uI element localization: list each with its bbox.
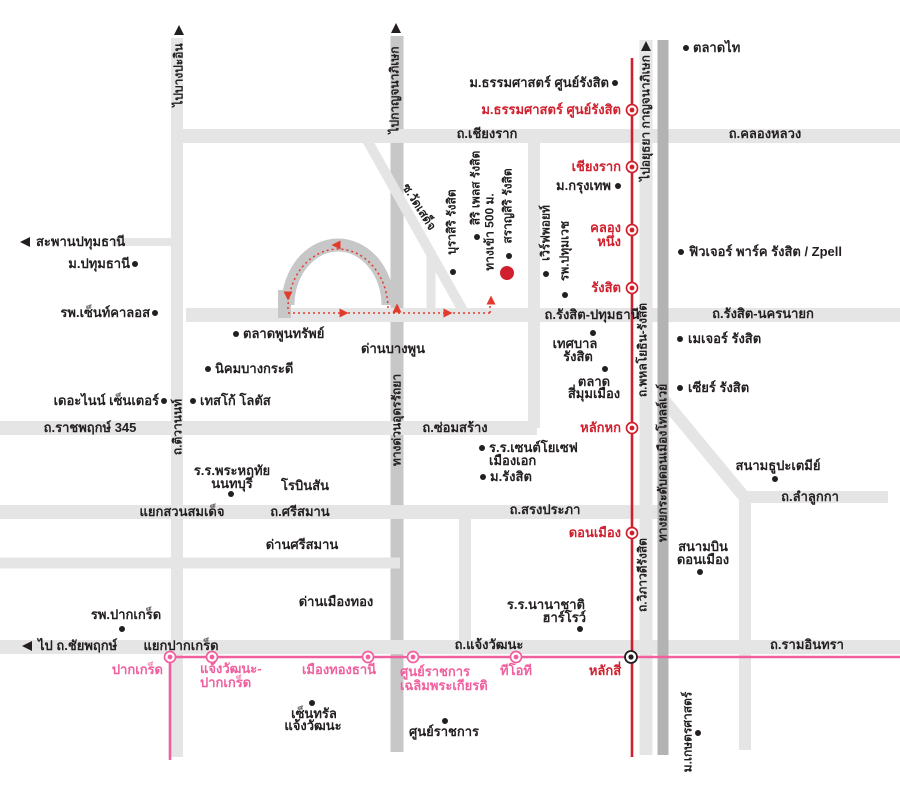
map-label: โรบินสัน [281,479,329,493]
map-label: รพ.ปทุมเวช [559,221,572,281]
map-label: ฮาร์โรว์ [543,611,586,625]
map-label: ถ.ราชพฤกษ์ 345 [44,421,137,435]
map-label: ไปกาญจนาภิเษก [389,46,402,133]
map-label: ถ.เชียงราก [457,127,518,141]
map-label: ปากเกร็ด [200,676,251,690]
map-label: แยกปากเกร็ด [143,639,218,653]
map-label: แยกสวนสมเด็จ [140,505,225,519]
map-label: ถ.ลำลูกกา [781,490,839,504]
map-label: เฉลิมพระเกียรติ [400,679,488,693]
map-label: ซ.วัดเสด็จ [400,182,438,233]
map-label: รังสิต [563,350,593,364]
map-label: หนึ่ง [597,235,621,249]
map-label: ด่านบางพูน [361,342,425,356]
map-label: ด่านศรีสมาน [266,538,339,552]
map-label: เชียงราก [572,160,621,174]
map-label: ไปอยุธยา กาญจนาภิเษก [640,55,653,181]
map-label: ม.รังสิต [490,470,532,484]
map-label: ม.ธรรมศาสตร์ ศูนย์รังสิต [469,76,609,90]
map-label: ปากเกร็ด [112,663,163,677]
map-label: ถ.ศรีสมาน [270,505,329,519]
map-label: ถ.พหลโยธิน-รังสิต [637,303,650,397]
map-label: นิคมบางกระดี [215,362,293,376]
map-label: ถ.วิภาวดีรังสิต [637,538,650,612]
map-label: ดอนเมือง [569,526,621,540]
map-label: ถ.แจ้งวัฒนะ [455,638,524,652]
map-label: สะพานปทุมธานี [36,235,125,249]
map-label: สิริ เพลส รังสิต [470,151,483,226]
map-label: ถ.คลองหลวง [729,127,801,141]
map-label: ม.ปทุมธานี [68,257,130,271]
map-label: ถ.รังสิต-ปทุมธานี [544,308,639,322]
map-label: ไป ถ.ชัยพฤกษ์ [38,639,117,653]
map-label: ถ.สรงประภา [510,503,581,517]
map-label: ถ.รามอินทรา [770,638,844,652]
map-label: ถ.รังสิต-นครนายก [712,307,814,321]
map-label: ทีโอที [500,664,532,678]
map-label: รพ.ปากเกร็ด [91,608,161,622]
map-label: ม.เกษตรศาสตร์ [682,692,695,773]
map-label: เวิร์ฟพอยท์ [540,205,553,261]
map-label: เดอะไนน์ เซ็นเตอร์ [54,394,159,408]
map-label: ถ.ติวานนท์ [172,399,185,455]
map-label: ม.กรุงเทพ [556,179,611,193]
map-label: สนามธูปะเตมีย์ [736,459,821,473]
map-label: หลักสี่ [589,664,621,678]
map-labels-layer: ม.ธรรมศาสตร์ ศูนย์รังสิตม.ธรรมศาสตร์ ศูน… [0,0,900,792]
map-label: สี่มุมเมือง [568,387,620,401]
map-label: ฟิวเจอร์ พาร์ค รังสิต / Zpell [689,245,842,259]
map-label: ทางด่วนอุดรรัถยา [391,374,404,466]
map-label: ถ.ซ่อมสร้าง [422,421,487,435]
map-label: หลักหก [580,421,621,435]
map-canvas: ม.ธรรมศาสตร์ ศูนย์รังสิตม.ธรรมศาสตร์ ศูน… [0,0,900,792]
map-label: ตลาดไท [693,41,740,55]
map-label: แจ้งวัฒนะ [284,719,341,733]
map-label: คลอง [590,221,621,235]
map-label: ทางยกระดับดอนเมืองโทลล์เวย์ [657,384,670,542]
map-label: นนทบุรี [211,477,253,491]
map-label: เมืองทองธานี [302,663,376,677]
map-label: แจ้งวัฒนะ- [200,662,262,676]
map-label: ศูนย์ราชการ [400,665,470,679]
map-label: ด่านเมืองทอง [299,595,374,609]
map-label: สราญสิริ รังสิต [502,168,515,243]
map-label: ดอนเมือง [677,553,729,567]
map-label: ไปบางปะอิน [173,43,186,106]
map-label: ตลาดพูนทรัพย์ [243,327,324,341]
map-label: รังสิต [591,281,621,295]
map-label: บุราสิริ รังสิต [446,189,459,254]
map-label: เซียร์ รังสิต [688,381,749,395]
map-label: ทางเข้า 500 ม. [484,193,497,270]
map-label: เมืองเอก [489,454,536,468]
map-label: ม.ธรรมศาสตร์ ศูนย์รังสิต [481,103,621,117]
map-label: รพ.เซ็นท์คาลอส [60,306,150,320]
map-label: เทสโก้ โลตัส [200,394,271,408]
map-label: ศูนย์ราชการ [409,725,479,739]
map-label: เมเจอร์ รังสิต [688,332,761,346]
